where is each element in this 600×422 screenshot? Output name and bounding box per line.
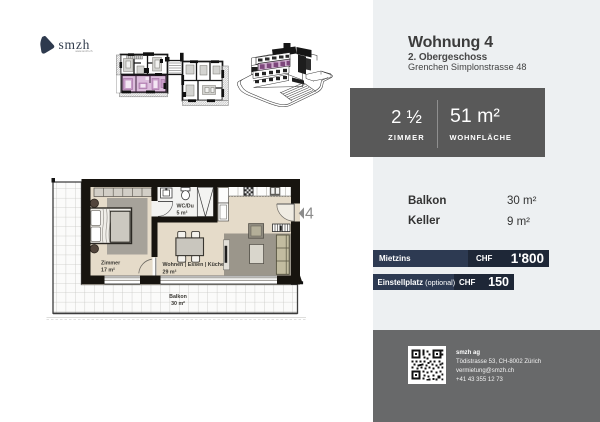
svg-text:4: 4 — [305, 206, 314, 223]
svg-text:29 m²: 29 m² — [163, 270, 177, 276]
svg-text:30 m²: 30 m² — [171, 301, 185, 307]
svg-text:17 m²: 17 m² — [101, 268, 115, 274]
svg-text:Wohnen | Essen | Küche: Wohnen | Essen | Küche — [163, 262, 224, 268]
svg-text:WC/Du: WC/Du — [177, 204, 194, 210]
svg-text:Zimmer: Zimmer — [101, 261, 120, 267]
svg-text:www.smzh.ch: www.smzh.ch — [75, 49, 93, 53]
svg-text:5 m²: 5 m² — [177, 211, 188, 217]
svg-text:Balkon: Balkon — [169, 294, 187, 300]
